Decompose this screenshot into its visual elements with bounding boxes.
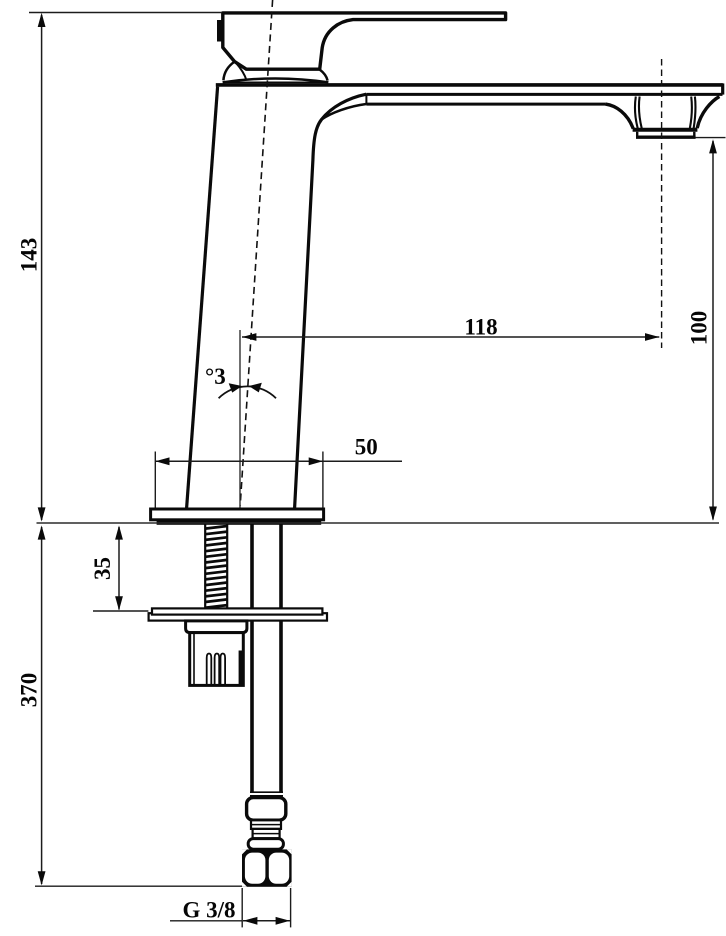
svg-text:370: 370	[17, 673, 42, 708]
svg-text:118: 118	[464, 315, 497, 340]
svg-text:35: 35	[90, 557, 115, 580]
svg-text:°3: °3	[205, 364, 226, 389]
svg-text:G 3/8: G 3/8	[182, 898, 235, 923]
svg-text:143: 143	[17, 238, 42, 273]
svg-text:100: 100	[687, 311, 712, 346]
svg-text:50: 50	[355, 435, 378, 460]
